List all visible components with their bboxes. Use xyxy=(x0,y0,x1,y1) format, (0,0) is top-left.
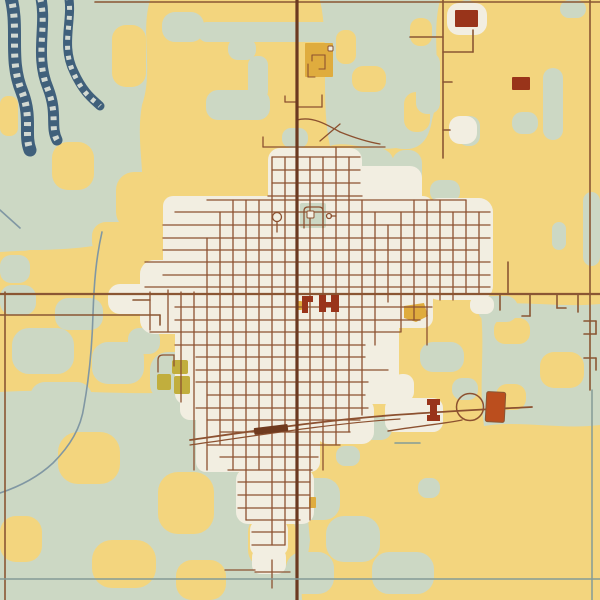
map-detail xyxy=(307,211,314,218)
map-image xyxy=(0,0,600,600)
field-patch xyxy=(0,96,18,136)
vegetation-patch xyxy=(55,298,103,330)
field-patch xyxy=(410,18,432,46)
vegetation-patch xyxy=(326,516,380,562)
vegetation-patch xyxy=(12,328,74,374)
vegetation-patch xyxy=(452,378,478,400)
vegetation-patch xyxy=(418,478,440,498)
ballfield-area xyxy=(157,374,171,390)
vegetation-patch xyxy=(286,552,334,594)
urban-area xyxy=(470,296,494,314)
field-patch xyxy=(52,142,94,190)
map-detail xyxy=(328,46,333,51)
field-patch xyxy=(336,30,356,64)
field-patch xyxy=(176,560,226,600)
vegetation-patch xyxy=(543,68,563,140)
ballfield-area xyxy=(174,376,190,394)
vegetation-patch xyxy=(416,52,440,114)
vegetation-patch xyxy=(512,112,538,134)
vegetation-patch xyxy=(162,12,204,42)
vegetation-patch xyxy=(282,128,308,148)
urban-area xyxy=(252,548,286,574)
building xyxy=(485,392,506,423)
field-patch xyxy=(112,25,146,87)
urban-area xyxy=(108,284,156,314)
urban-area xyxy=(425,198,493,300)
vegetation-patch xyxy=(198,22,336,42)
field-patch xyxy=(116,172,164,230)
vegetation-patch xyxy=(583,192,600,266)
map-viewport xyxy=(0,0,600,600)
vegetation-patch xyxy=(248,56,268,100)
building xyxy=(512,77,530,90)
building xyxy=(455,10,478,27)
vegetation-patch xyxy=(420,342,464,372)
vegetation-patch xyxy=(336,446,360,466)
vegetation-patch xyxy=(372,552,434,594)
field-patch xyxy=(0,516,42,562)
field-patch xyxy=(148,88,192,162)
field-patch xyxy=(352,66,386,92)
field-patch xyxy=(58,432,120,484)
field-patch xyxy=(158,472,214,534)
urban-area xyxy=(449,116,477,144)
vegetation-patch xyxy=(0,255,30,283)
vegetation-patch xyxy=(552,222,566,250)
urban-area xyxy=(392,374,414,402)
field-patch xyxy=(540,352,584,388)
urban-area xyxy=(236,468,314,524)
field-patch xyxy=(92,540,156,588)
